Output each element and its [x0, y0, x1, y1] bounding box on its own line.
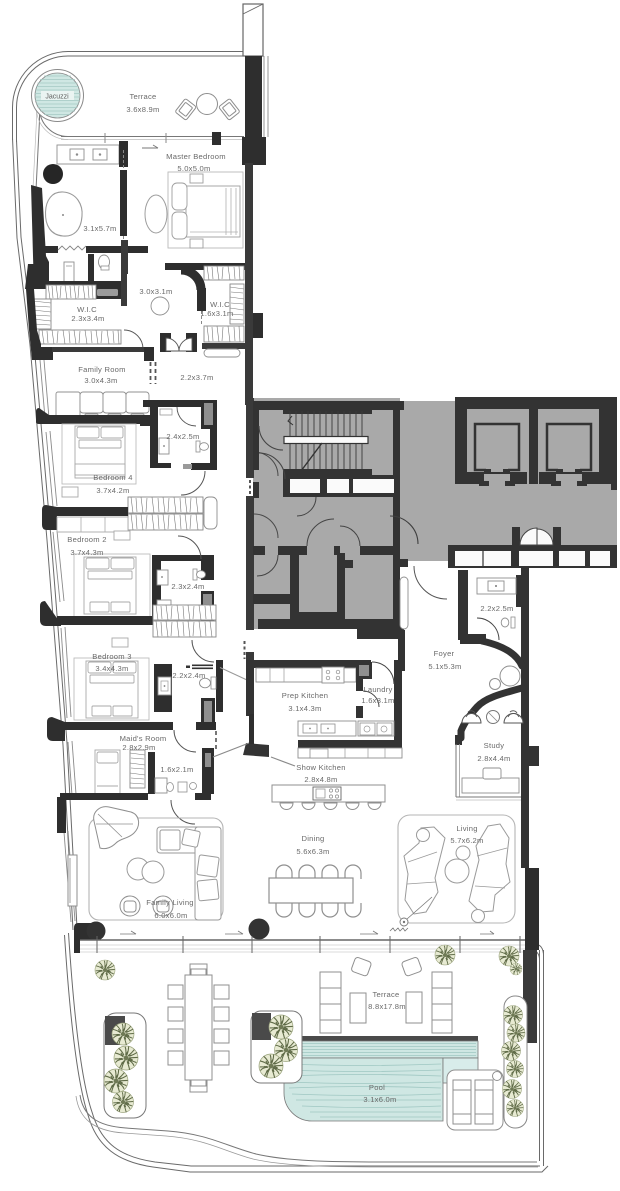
svg-text:Prep Kitchen: Prep Kitchen	[282, 691, 328, 700]
svg-text:3.7x4.2m: 3.7x4.2m	[96, 486, 129, 495]
svg-text:5.6x6.3m: 5.6x6.3m	[296, 847, 329, 856]
svg-text:3.1x4.3m: 3.1x4.3m	[288, 704, 321, 713]
svg-text:3.7x4.3m: 3.7x4.3m	[70, 548, 103, 557]
svg-text:3.0x3.1m: 3.0x3.1m	[139, 287, 172, 296]
svg-text:Pool: Pool	[369, 1083, 385, 1092]
svg-text:2.2x2.4m: 2.2x2.4m	[172, 671, 205, 680]
svg-text:2.2x3.7m: 2.2x3.7m	[180, 373, 213, 382]
svg-text:2.4x2.5m: 2.4x2.5m	[166, 432, 199, 441]
svg-text:1.6x2.1m: 1.6x2.1m	[160, 765, 193, 774]
svg-text:Family Living: Family Living	[146, 898, 194, 907]
svg-text:W.I.C: W.I.C	[77, 305, 97, 314]
svg-text:3.0x4.3m: 3.0x4.3m	[84, 376, 117, 385]
svg-text:5.0x5.0m: 5.0x5.0m	[177, 164, 210, 173]
svg-text:Master Bedroom: Master Bedroom	[166, 152, 226, 161]
svg-text:Family Room: Family Room	[78, 365, 125, 374]
svg-text:Terrace: Terrace	[129, 92, 156, 101]
svg-text:W.I.C: W.I.C	[210, 300, 230, 309]
svg-text:2.3x2.4m: 2.3x2.4m	[171, 582, 204, 591]
svg-text:Jacuzzi: Jacuzzi	[45, 94, 69, 101]
svg-text:Terrace: Terrace	[372, 990, 399, 999]
svg-text:3.1x5.7m: 3.1x5.7m	[83, 224, 116, 233]
svg-text:2.3x3.4m: 2.3x3.4m	[71, 314, 104, 323]
svg-text:2.8x4.4m: 2.8x4.4m	[477, 754, 510, 763]
svg-text:2.8x4.8m: 2.8x4.8m	[304, 775, 337, 784]
svg-text:Laundry: Laundry	[363, 685, 392, 694]
svg-text:Show Kitchen: Show Kitchen	[296, 763, 345, 772]
svg-text:Living: Living	[456, 824, 477, 833]
svg-text:5.1x5.3m: 5.1x5.3m	[428, 662, 461, 671]
svg-text:1.6x3.1m: 1.6x3.1m	[200, 309, 233, 318]
svg-text:3.1x6.0m: 3.1x6.0m	[363, 1095, 396, 1104]
svg-text:Bedroom 3: Bedroom 3	[92, 652, 131, 661]
svg-text:2.2x2.5m: 2.2x2.5m	[480, 604, 513, 613]
svg-text:3.6x8.9m: 3.6x8.9m	[126, 105, 159, 114]
svg-text:3.4x4.3m: 3.4x4.3m	[95, 664, 128, 673]
svg-text:Bedroom 2: Bedroom 2	[67, 535, 106, 544]
svg-text:8.8x17.8m: 8.8x17.8m	[368, 1002, 406, 1011]
svg-text:Foyer: Foyer	[434, 649, 455, 658]
svg-text:1.6x3.1m: 1.6x3.1m	[361, 696, 394, 705]
svg-text:5.7x6.2m: 5.7x6.2m	[450, 836, 483, 845]
svg-text:Study: Study	[484, 741, 505, 750]
svg-text:6.0x6.0m: 6.0x6.0m	[154, 911, 187, 920]
svg-text:Maid's Room: Maid's Room	[120, 734, 167, 743]
svg-text:2.8x2.9m: 2.8x2.9m	[122, 743, 155, 752]
svg-text:Dining: Dining	[301, 834, 324, 843]
svg-text:Bedroom 4: Bedroom 4	[93, 473, 132, 482]
